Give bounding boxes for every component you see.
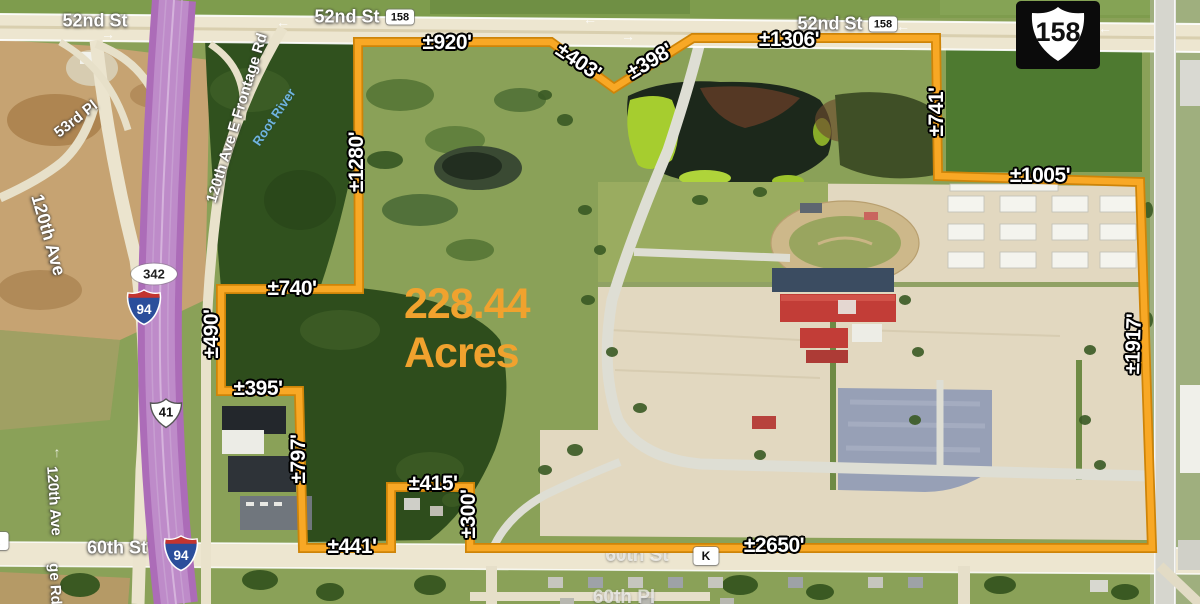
route-shield-158: 158 xyxy=(1016,1,1100,69)
route-shield-342: 342 xyxy=(131,264,177,285)
dimension-label: ±300' xyxy=(457,489,481,538)
dimension-label: ±740' xyxy=(267,277,316,301)
acreage-unit: Acres xyxy=(404,329,530,378)
dimension-label: ±415' xyxy=(408,472,457,496)
route-shield-158: 158 xyxy=(869,17,897,32)
dimension-label: ±1917' xyxy=(1121,313,1147,374)
lane-arrow-icon: → xyxy=(621,28,635,44)
dimension-label: ±398' xyxy=(623,39,677,85)
road-label: 120th Ave xyxy=(26,192,69,278)
road-label: ge Rd xyxy=(45,563,64,604)
route-shield-94: 94 xyxy=(163,534,199,572)
dimension-label: ±920' xyxy=(422,31,471,55)
dimension-label: ±403' xyxy=(551,38,605,85)
dimension-label: ±2650' xyxy=(744,534,804,558)
lane-arrow-icon: ← xyxy=(583,11,597,27)
acreage-label: 228.44 Acres xyxy=(404,280,530,378)
lane-arrow-icon: ↑ xyxy=(54,444,61,460)
road-label: 52nd St xyxy=(314,7,379,28)
dimension-label: ±1280' xyxy=(345,132,369,192)
lane-arrow-icon: → xyxy=(101,26,115,42)
route-shield-94: 94 xyxy=(126,288,162,326)
svg-text:158: 158 xyxy=(1035,17,1080,47)
route-shield-k: K xyxy=(0,532,9,550)
dimension-label: ±1005' xyxy=(1010,164,1070,188)
lane-arrow-icon: ← xyxy=(896,18,910,34)
acreage-value: 228.44 xyxy=(404,280,530,329)
road-label: 52nd St xyxy=(62,11,127,32)
road-label: 120th Ave E Frontage Rd xyxy=(203,31,271,205)
svg-text:94: 94 xyxy=(173,548,189,563)
dimension-label: ±441' xyxy=(327,535,376,559)
water-label: Root River xyxy=(249,86,298,149)
route-shield-k: K xyxy=(694,547,719,565)
dimension-label: ±797' xyxy=(287,434,311,483)
dimension-label: ±490' xyxy=(200,309,224,358)
svg-text:94: 94 xyxy=(136,302,152,317)
aerial-property-map: 60th St60th Pl 228.44 Acres ±920'±403'±3… xyxy=(0,0,1200,604)
road-label: 120th Ave xyxy=(43,466,65,537)
lane-arrow-icon: ← xyxy=(276,14,290,30)
road-label: 53rd Pl xyxy=(51,97,101,141)
svg-text:41: 41 xyxy=(159,405,173,420)
route-shield-41: 41 xyxy=(147,396,185,430)
road-label: 60th St xyxy=(87,538,147,559)
labels-over-layer: 228.44 Acres ±920'±403'±398'±1306'±741'±… xyxy=(0,0,1200,604)
dimension-label: ±395' xyxy=(233,377,282,401)
route-shield-158: 158 xyxy=(386,10,414,25)
dimension-label: ±741' xyxy=(925,87,949,136)
lane-arrow-icon: ← xyxy=(1098,20,1112,36)
road-label: 52nd St xyxy=(797,14,862,35)
